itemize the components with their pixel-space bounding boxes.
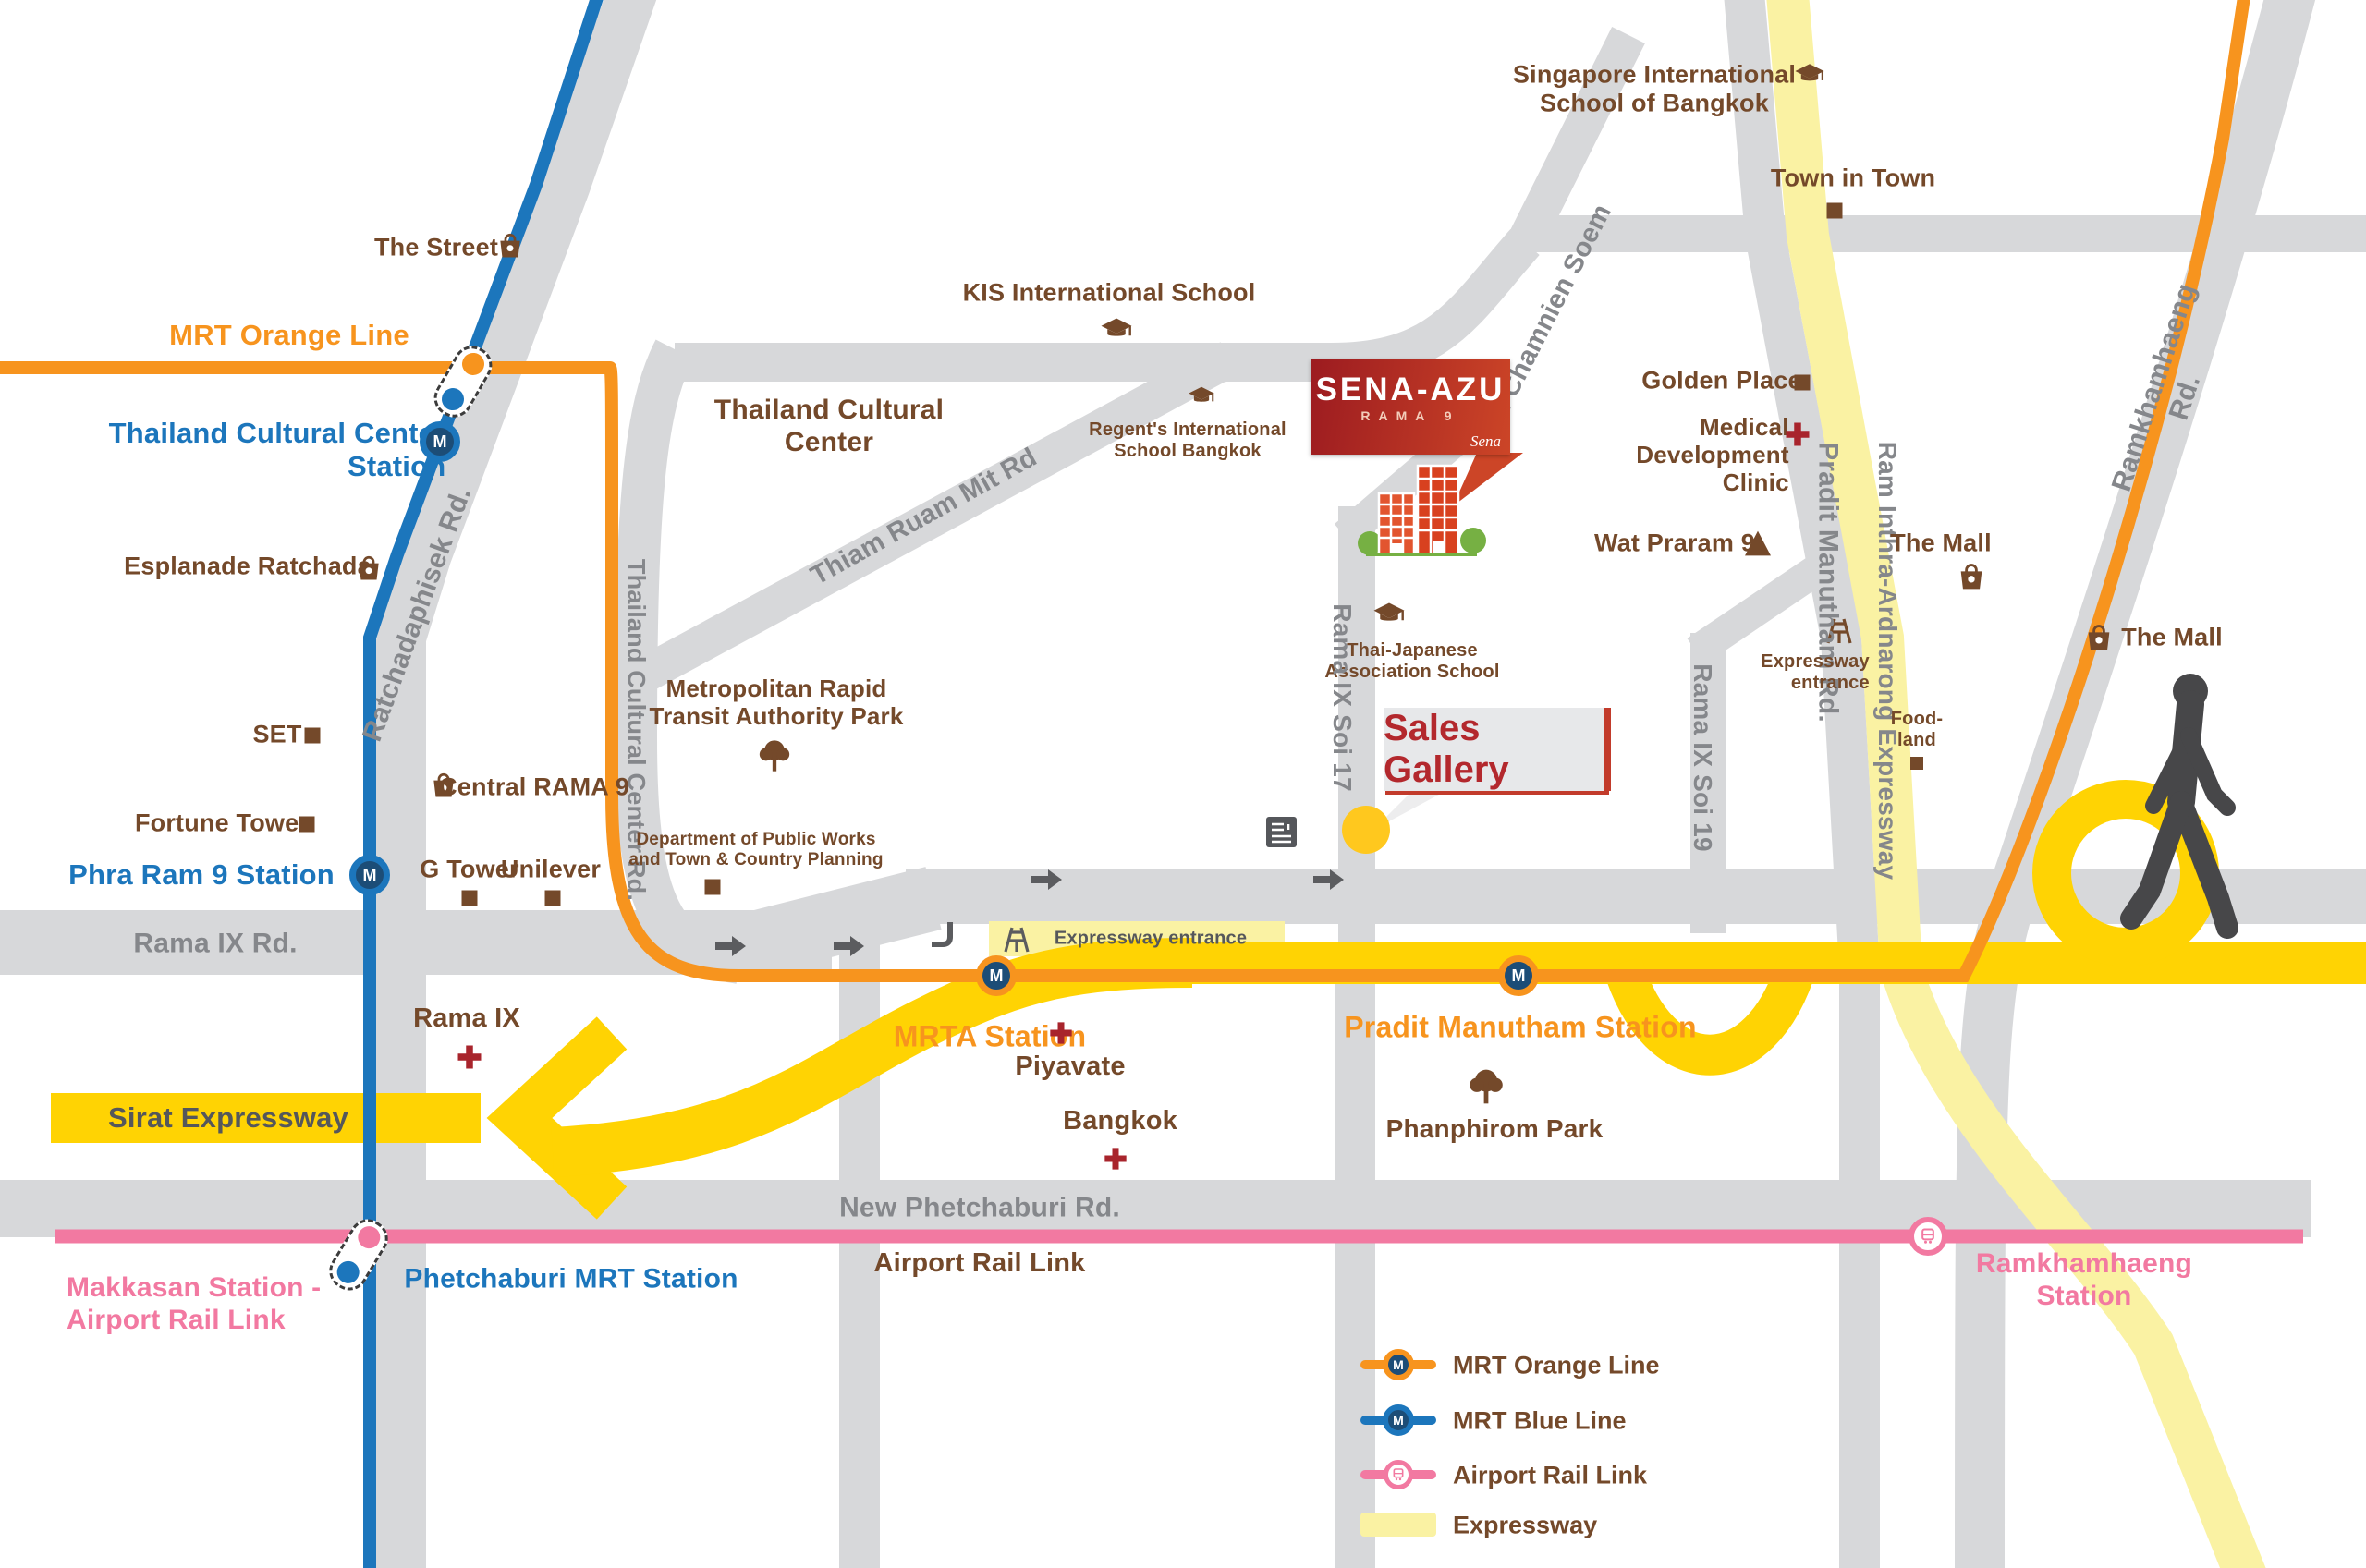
poi-dept-public-works: Department of Public Works and Town & Co… [628,830,883,870]
legend-label: Airport Rail Link [1453,1462,1647,1490]
hospital-cross-icon [1784,420,1811,448]
poi-mrta-park: Metropolitan Rapid Transit Authority Par… [649,675,903,730]
poi-regents-school: Regent's International School Bangkok [1089,419,1287,462]
office-building-icon [1266,817,1297,847]
sena-brand-mark: Sena [1470,432,1501,451]
project-name: SENA-AZU [1311,371,1510,408]
arl-station-badge [1384,1460,1413,1489]
mrt-station-badge: M [976,955,1017,996]
arl-station-badge [1909,1217,1947,1256]
poi-the-mall-left: The Mall [1890,529,1992,557]
place-marker [705,880,721,895]
shopping-bag-icon [495,231,525,261]
mrt-station-badge: M [1498,955,1539,996]
sena-azu-banner: SENA-AZU RAMA 9 Sena [1311,359,1510,455]
shopping-bag-icon [354,553,384,583]
station-pradit-manutham: Pradit Manutham Station [1344,1010,1697,1044]
project-subtitle: RAMA 9 [1311,408,1510,423]
poi-wat-praram9: Wat Praram 9 [1594,529,1755,557]
poi-piyavate-line1: Piyavate [1015,1051,1125,1083]
hospital-cross-icon [456,1043,483,1071]
poi-unilever: Unilever [501,855,601,883]
school-icon [1188,383,1215,411]
sena-banner-tail [1453,453,1523,506]
map-base-layer [0,0,2366,1568]
tree-icon [756,737,793,774]
poi-piyavate-line2: Bangkok [1063,1106,1177,1137]
place-marker [545,891,561,906]
label-mrt-orange-line: MRT Orange Line [169,319,409,352]
poi-rama9-hospital: Rama IX [413,1003,520,1035]
road-label-new-phetchaburi: New Phetchaburi Rd. [839,1193,1120,1225]
place-marker [1827,203,1843,219]
hospital-cross-icon [1048,1020,1074,1046]
poi-kis-international-school: KIS International School [963,278,1256,307]
poi-golden-place: Golden Place [1641,366,1801,395]
mrt-station-badge: M [1383,1349,1414,1380]
tree-icon [1466,1066,1506,1107]
poi-phanphirom-park: Phanphirom Park [1386,1114,1604,1144]
mrt-station-badge: M [420,421,460,462]
legend-label: Expressway [1453,1512,1597,1540]
station-thailand-cultural-center: Thailand Cultural Center Station [109,417,446,483]
legend-label: MRT Blue Line [1453,1407,1627,1436]
blue-line-dot [438,384,469,415]
hospital-cross-icon [1103,1146,1128,1172]
station-ramkhamhaeng: Ramkhamhaeng Station [1944,1248,2226,1313]
sales-gallery-callout: Sales Gallery [1384,708,1611,791]
road-label-rama9-soi17: Rama IX Soi 17 [1327,603,1357,792]
label-sirat-expressway: Sirat Expressway [108,1101,348,1135]
station-phetchaburi: Phetchaburi MRT Station [404,1264,738,1296]
mrt-station-badge: M [1383,1404,1414,1436]
poi-singapore-international-school: Singapore International School of Bangko… [1513,61,1796,119]
train-icon [1919,1227,1937,1246]
label-expressway-entrance-right: Expressway entrance [1761,651,1870,694]
place-marker [462,891,478,906]
poi-thailand-cultural-center: Thailand Cultural Center [714,395,944,459]
shopping-bag-icon [2083,622,2115,653]
road-label-ram-inthra-expressway: Ram Inthra-Ardnarong Expressway [1872,442,1902,881]
temple-icon [1743,529,1773,558]
mrt-station-badge: M [349,855,390,895]
poi-foodland: Food- land [1891,709,1944,751]
orange-line-dot [458,349,489,380]
train-icon [1391,1467,1406,1482]
poi-the-street: The Street [374,233,498,261]
poi-set: SET [252,720,301,748]
legend-label: MRT Orange Line [1453,1352,1660,1380]
poi-central-rama9: Central RAMA 9 [439,772,629,801]
school-icon [1100,314,1133,347]
place-marker [1910,757,1923,770]
legend-swatch-expressway [1360,1513,1436,1537]
road-label-rama9: Rama IX Rd. [133,929,297,961]
school-icon [1794,60,1825,91]
school-icon [1372,599,1406,632]
sales-gallery-marker [1342,806,1390,854]
map-canvas: Singapore International School of Bangko… [0,0,2366,1568]
poi-fortune-tower: Fortune Tower [135,808,309,837]
road-label-rama9-soi19: Rama IX Soi 19 [1688,663,1717,852]
shopping-bag-icon [1956,561,1987,592]
station-phra-ram9: Phra Ram 9 Station [68,858,335,892]
place-marker [299,817,315,833]
poi-medical-development-clinic: Medical Development Clinic [1636,413,1788,496]
arl-line-dot [354,1222,384,1253]
poi-the-mall-right: The Mall [2121,623,2223,651]
place-marker [305,728,321,744]
blue-line-dot [333,1257,363,1287]
sirat-arrowhead [519,1033,612,1203]
poi-esplanade-ratchada: Esplanade Ratchada [124,552,372,580]
label-airport-rail-link: Airport Rail Link [874,1248,1086,1280]
poi-town-in-town: Town in Town [1771,164,1935,192]
place-marker [1795,375,1811,391]
label-expressway-entrance-mid: Expressway entrance [1055,928,1247,949]
station-makkasan: Makkasan Station - Airport Rail Link [67,1272,321,1337]
